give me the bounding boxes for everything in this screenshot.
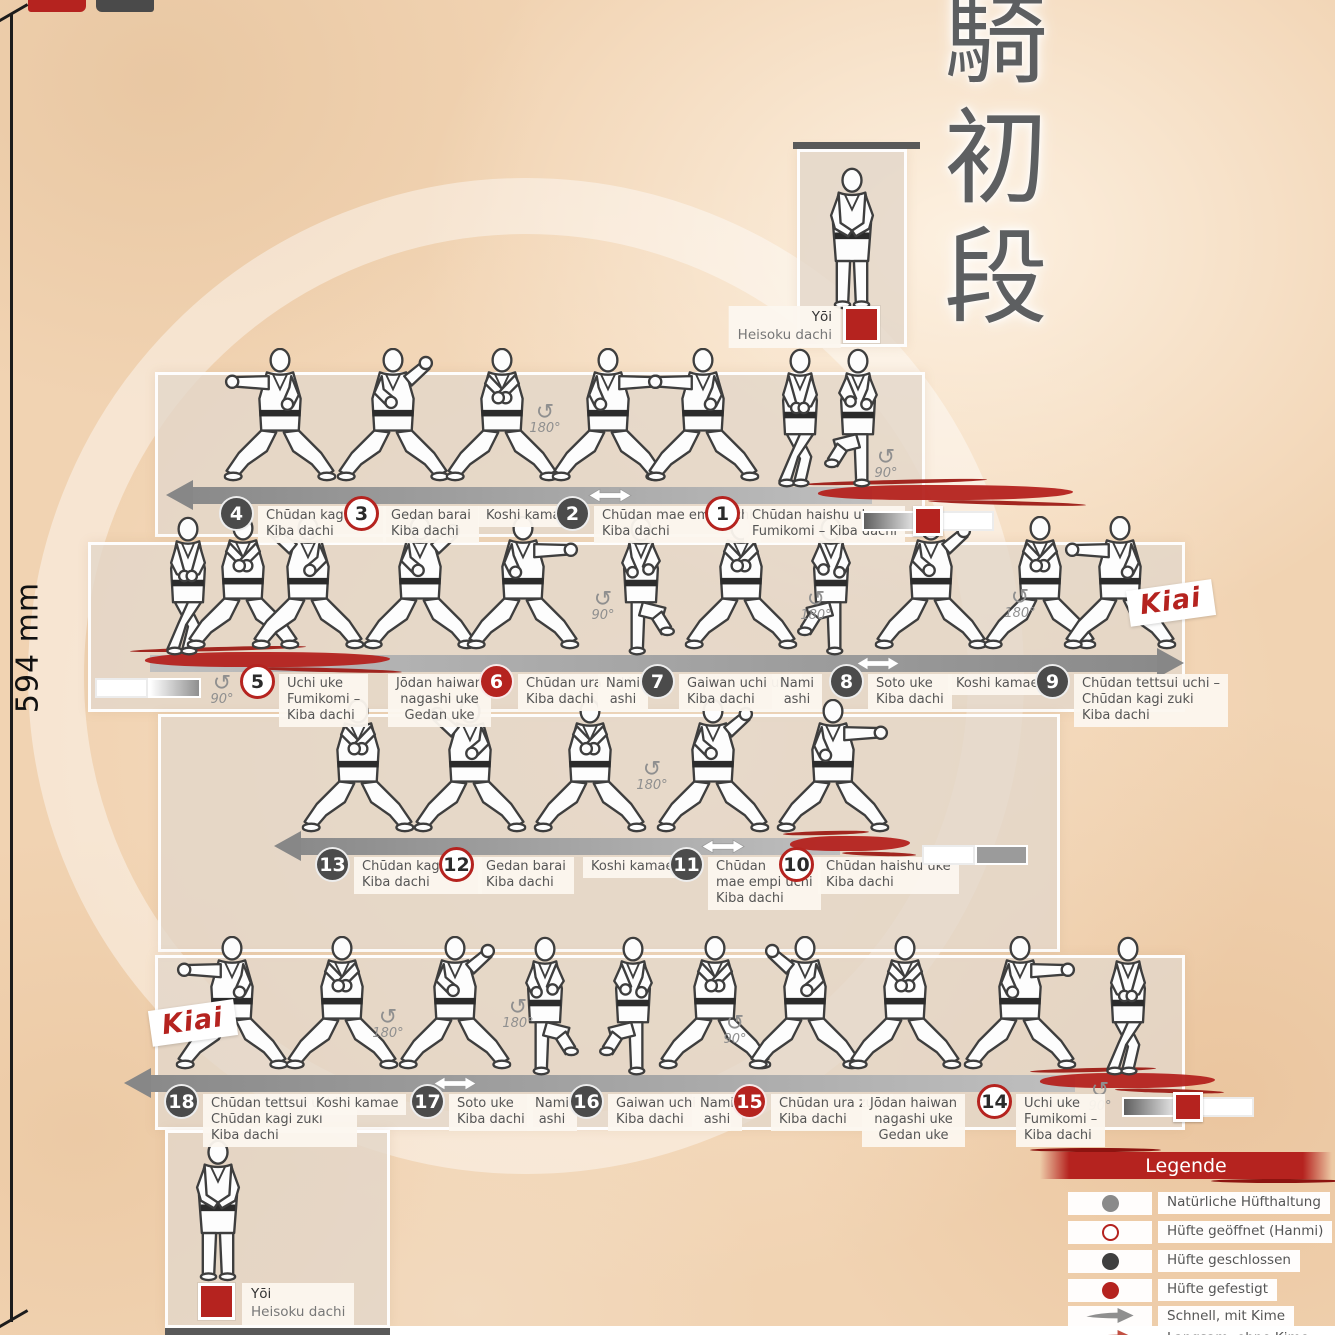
start-position-label-title: Yōi [738,309,832,327]
row-1-karate-figure-kiba2 [220,348,340,498]
row-4-arrowhead [124,1068,151,1098]
step-label-line: Nami [780,676,814,692]
step-label: Gedan baraiKiba dachi [478,857,574,894]
rotate-arrow-icon: ↺ [591,592,614,608]
row-1-enbusen-progress-bar [862,506,994,536]
step-number: 11 [669,847,704,882]
step-label-line: Jōdan haiwan [870,1096,957,1112]
top-dark-brush-mark [96,0,154,12]
arrow-red-icon [1085,1329,1135,1335]
row-3-arrowhead [274,831,301,861]
step-label-line: Gedan barai [486,859,566,875]
step-label-line: Soto uke [876,676,944,692]
rotate-arrow-icon: ↺ [529,405,560,421]
row-4-enbusen-progress-bar [1122,1092,1254,1122]
step-label-line: Kiba dachi [287,708,360,724]
start-position-figure-yoi [795,158,909,326]
row-3-karate-figure-kiba3 [653,699,773,849]
rotation-degrees: 90° [210,692,233,707]
row-4-rotation-indicator: ↺180° [502,1000,533,1031]
step-label-line: ashi [606,692,640,708]
row-4-karate-figure-cross [1068,936,1188,1086]
kanji-character-1: 騎 [944,0,1048,92]
poster-size-label: 594 mm [11,573,46,723]
legend-label: Hüfte geöffnet (Hanmi) [1158,1221,1332,1243]
step-label: Gedan baraiKiba dachi [383,506,479,543]
step-number: 14 [977,1084,1012,1119]
bar-segment-white [941,511,994,531]
step-label-line: Kiba dachi [1024,1128,1097,1144]
end-position-label: YōiHeisoku dachi [242,1283,354,1325]
row-4-rotation-indicator: ↺90° [723,1016,746,1047]
step-number: 1 [705,496,740,531]
legend-symbol-circle-gray [1068,1192,1152,1215]
step-label-line: Kiba dachi [826,875,951,891]
row-4-step: Koshi kamae [308,1084,406,1115]
row-2-rotation-indicator: ↺180° [800,592,831,623]
step-label: Koshi kamae [583,857,681,878]
legend-title: Legende [1145,1155,1226,1177]
legend-symbol-circle-dark [1068,1250,1152,1273]
legend-label: Langsam, ohne Kime [1158,1328,1318,1335]
end-position-red-square [198,1283,235,1320]
step-label-line: Nami [535,1096,569,1112]
row-3-karate-figure-kiba2 [773,699,893,849]
rotation-degrees: 180° [636,778,667,793]
step-label-line: ashi [535,1112,569,1128]
row-4-step-14: 14Uchi ukeFumikomi –Kiba dachi [977,1084,1105,1147]
step-label: Soto ukeKiba dachi [868,674,952,711]
end-position-bottom-bar [165,1328,390,1335]
row-2-step: Namiashi [772,664,822,711]
step-label-line: nagashi uke [396,692,483,708]
diagram-content: ↺180°↺90°4Chūdan kagi zukiKiba dachi3Ged… [0,0,1335,1335]
step-label-line: Chūdan tettsui uchi – [1082,676,1220,692]
rotate-arrow-icon: ↺ [210,676,233,692]
step-label-line: Gedan uke [396,708,483,724]
step-number: 9 [1035,664,1070,699]
bar-segment-gray [975,845,1028,865]
rotation-degrees: 90° [874,466,897,481]
legend-label: Natürliche Hüfthaltung [1158,1192,1330,1214]
step-label-line: Kiba dachi [1082,708,1220,724]
start-position-top-bar [793,142,920,149]
rotation-degrees: 180° [372,1026,403,1041]
kata-title-kanji-column: 騎 初 段 [928,0,1064,332]
step-number: 7 [640,664,675,699]
top-red-brush-mark [28,0,86,12]
legend-symbol-circle-red [1068,1279,1152,1302]
rotate-arrow-icon: ↺ [636,762,667,778]
legend-symbol-circle-open [1068,1221,1152,1244]
row-4-rotation-indicator: ↺180° [372,1010,403,1041]
step-label: Jōdan haiwannagashi ukeGedan uke [862,1094,965,1147]
step-number: 17 [410,1084,445,1119]
step-label: Uchi ukeFumikomi –Kiba dachi [279,674,368,727]
step-number: 8 [829,664,864,699]
step-number: 4 [219,496,254,531]
bar-segment-white [1201,1097,1254,1117]
rotation-degrees: 90° [723,1032,746,1047]
kata-poster-tekki-shodan: 594 mm 騎 初 段 ↺180°↺90°4Chūdan kagi zukiK… [0,0,1335,1335]
bar-segment-red [913,506,943,536]
step-number: 16 [569,1084,604,1119]
rotate-arrow-icon: ↺ [502,1000,533,1016]
step-label-line: Koshi kamae [591,859,673,875]
step-label-line: Kiba dachi [486,875,566,891]
step-label-line: Kiba dachi [211,1128,349,1144]
step-number: 5 [240,664,275,699]
step-label: Koshi kamae [308,1094,406,1115]
step-label: Soto ukeKiba dachi [449,1094,533,1131]
bar-segment-grad-left [1122,1097,1175,1117]
legend-label: Hüfte geschlossen [1158,1250,1300,1272]
kanji-character-2: 初 [944,104,1048,212]
circle-red-icon [1102,1282,1119,1299]
step-number: 2 [555,496,590,531]
step-label-line: Koshi kamae [316,1096,398,1112]
step-label-line: Fumikomi – [1024,1112,1097,1128]
end-position-label-sub: Heisoku dachi [251,1304,345,1322]
rotate-arrow-icon: ↺ [874,450,897,466]
row-2-step: Koshi kamae [948,664,1046,695]
end-position-figure-yoi [161,1130,275,1298]
row-4-step: Jōdan haiwannagashi ukeGedan uke [862,1084,965,1147]
step-label-line: Kiba dachi [457,1112,525,1128]
step-label-line: Gedan uke [870,1128,957,1144]
step-number: 15 [732,1084,767,1119]
arrow-gray-icon [1085,1307,1135,1328]
row-2-step: Jōdan haiwannagashi ukeGedan uke [388,664,491,727]
step-label-line: Kiba dachi [391,524,471,540]
bar-segment-white [922,845,975,865]
step-label-line: Soto uke [457,1096,525,1112]
row-2-enbusen-progress-bar [95,678,201,698]
row-3-step: Koshi kamae [583,847,681,878]
step-label-line: Koshi kamae [956,676,1038,692]
circle-gray-icon [1102,1195,1119,1212]
row-1-step-3: 3Gedan baraiKiba dachi [344,496,479,543]
row-1-rotation-indicator: ↺90° [874,450,897,481]
rotation-degrees: 180° [529,421,560,436]
row-4-karate-figure-kiba2 [960,936,1080,1086]
row-1-arrowhead [166,480,193,510]
step-label-line: Uchi uke [1024,1096,1097,1112]
rotate-arrow-icon: ↺ [1004,590,1035,606]
row-4-step-17: 17Soto ukeKiba dachi [410,1084,533,1131]
rotate-arrow-icon: ↺ [372,1010,403,1026]
rotation-degrees: 180° [1004,606,1035,621]
step-label-line: Uchi uke [287,676,360,692]
step-label-line: Chūdan kagi zuki [1082,692,1220,708]
step-number: 18 [164,1084,199,1119]
row-1-karate-figure-knee [798,348,918,498]
step-label: Uchi ukeFumikomi –Kiba dachi [1016,1094,1105,1147]
legend-label: Hüfte gefestigt [1158,1279,1277,1301]
circle-dark-icon [1102,1253,1119,1270]
step-label: Jōdan haiwannagashi ukeGedan uke [388,674,491,727]
step-number: 6 [479,664,514,699]
row-2-step-9: 9Chūdan tettsui uchi –Chūdan kagi zukiKi… [1035,664,1228,727]
step-number: 10 [779,847,814,882]
bar-segment-red [1173,1092,1203,1122]
start-position-label-sub: Heisoku dachi [738,327,832,345]
step-number: 12 [439,847,474,882]
step-label-line: ashi [780,692,814,708]
step-label-line: ashi [700,1112,734,1128]
row-3-step-12: 12Gedan baraiKiba dachi [439,847,574,894]
step-label-line: Jōdan haiwan [396,676,483,692]
step-label: Chūdan tettsui uchi –Chūdan kagi zukiKib… [1074,674,1228,727]
row-3-karate-figure-kiba1 [530,699,650,849]
step-label-line: Fumikomi – [287,692,360,708]
row-2-rotation-indicator: ↺90° [591,592,614,623]
bar-segment-white [95,678,148,698]
row-2-step-5: 5Uchi ukeFumikomi –Kiba dachi [240,664,368,727]
legend-title-band: Legende [1040,1152,1332,1179]
legend-label: Schnell, mit Kime [1158,1306,1294,1328]
kanji-character-3: 段 [944,224,1048,332]
step-label: Namiashi [772,674,822,711]
step-number: 3 [344,496,379,531]
legend-symbol-arrow-gray [1068,1306,1152,1329]
rotation-degrees: 180° [800,608,831,623]
step-label-line: Kiba dachi [876,692,944,708]
row-2-step-8: 8Soto ukeKiba dachi [829,664,952,711]
circle-open-icon [1102,1224,1119,1241]
row-1-karate-figure-kiba3 [333,348,453,498]
row-3-enbusen-progress-bar [922,845,1028,865]
start-position-red-square [843,306,880,343]
legend-symbol-arrow-red [1068,1328,1152,1335]
step-label-line: Nami [606,676,640,692]
row-2-rotation-indicator: ↺180° [1004,590,1035,621]
rotate-arrow-icon: ↺ [723,1016,746,1032]
rotation-degrees: 90° [591,608,614,623]
row-3-rotation-indicator: ↺180° [636,762,667,793]
step-label-line: nagashi uke [870,1112,957,1128]
start-position-label: YōiHeisoku dachi [729,306,841,348]
rotation-degrees: 180° [502,1016,533,1031]
bar-segment-grad-left [862,511,915,531]
step-label: Koshi kamae [948,674,1046,695]
step-label-line: Gedan barai [391,508,471,524]
row-2-rotation-indicator: ↺90° [210,676,233,707]
rotate-arrow-icon: ↺ [800,592,831,608]
step-number: 13 [315,847,350,882]
row-1-rotation-indicator: ↺180° [529,405,560,436]
row-4-karate-figure-kiba1 [845,936,965,1086]
bar-segment-grad-right [148,678,201,698]
end-position-label-title: Yōi [251,1286,345,1304]
step-label-line: Nami [700,1096,734,1112]
